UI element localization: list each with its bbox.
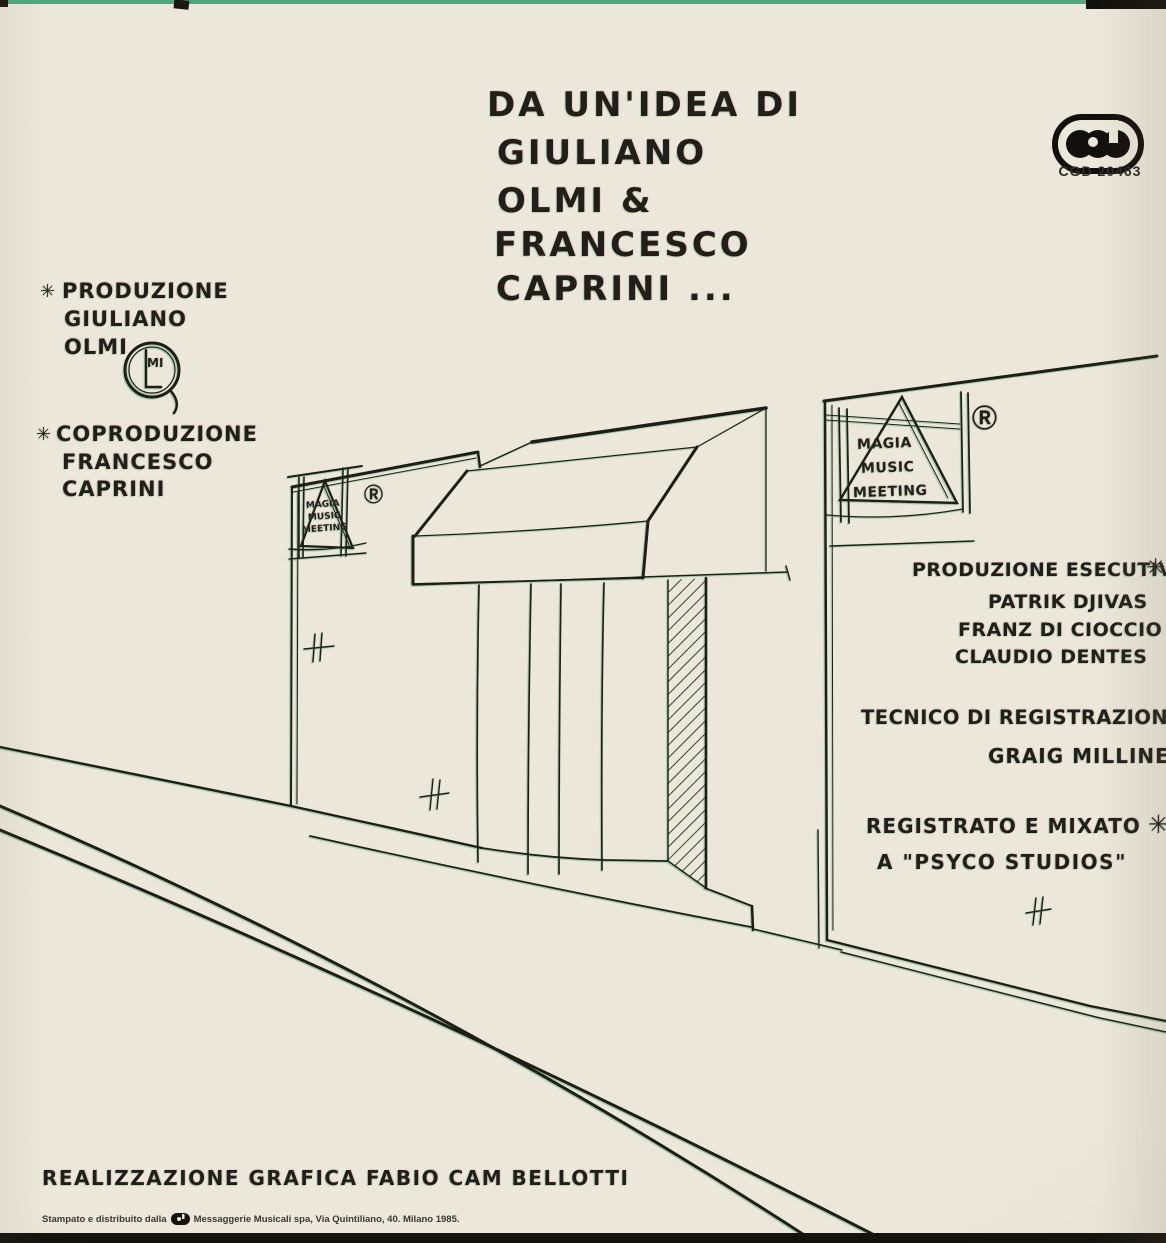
olmi-monogram-letters: MI xyxy=(147,357,163,369)
ground-line xyxy=(0,747,291,806)
sign-right-shelf-2 xyxy=(830,541,974,546)
awning-slope-right xyxy=(648,447,697,521)
sign-brand-line: MAGIA xyxy=(857,436,912,452)
exec-production-name: CLAUDIO DENTES xyxy=(955,648,1147,667)
sign-brand-line: MEETING xyxy=(853,484,928,501)
sign-right-pole-r xyxy=(961,392,970,513)
idea-credit-line: CAPRINI ... xyxy=(496,272,736,306)
left-wall-left-edge-2 xyxy=(297,492,298,804)
sign-left-pole-r xyxy=(341,468,348,556)
studio-line: A "PSYCO STUDIOS" xyxy=(877,852,1127,872)
pillar-hatch-fill xyxy=(668,578,706,888)
right-wall-top-edge xyxy=(824,356,1157,401)
column xyxy=(528,584,531,874)
exec-production-label: PRODUZIONE ESECUTIVA xyxy=(912,561,1166,580)
awning-front-top-edge xyxy=(467,447,697,471)
cgd-logo-notch xyxy=(1109,120,1118,143)
production-line: GIULIANO xyxy=(64,309,187,330)
asterisk-marker: ✳ xyxy=(1148,812,1166,837)
scan-tick xyxy=(174,0,190,10)
left-wall-top-edge xyxy=(292,452,478,487)
right-wall-bottom-edge xyxy=(827,940,1166,1021)
sign-right-shelf xyxy=(827,509,963,517)
production-line: OLMI xyxy=(64,337,128,358)
left-wall-step xyxy=(478,452,480,467)
registered-mark: Ⓡ xyxy=(972,406,997,431)
left-wall-left-edge xyxy=(291,487,292,806)
coproduction-line: FRANCESCO xyxy=(62,452,214,473)
awning-sketch xyxy=(413,408,790,585)
hash-mark xyxy=(304,633,334,662)
left-wall-top-edge-2 xyxy=(293,458,476,492)
mix-label: REGISTRATO E MIXATO xyxy=(866,816,1141,836)
right-wall-left-edge xyxy=(825,401,827,940)
cgd-logo-small-gap xyxy=(177,1217,181,1221)
column xyxy=(602,583,604,870)
awning-back-edge xyxy=(480,442,532,466)
coproduction-line: COPRODUZIONE xyxy=(56,424,258,445)
right-wall-bottom-edge-2 xyxy=(841,952,1166,1032)
asterisk-marker: ✳ xyxy=(1146,557,1166,580)
column xyxy=(559,584,561,874)
right-wall-foot-line xyxy=(818,830,819,948)
cgd-logo-gap xyxy=(1088,137,1098,147)
cgd-logo-small xyxy=(171,1213,190,1225)
left-wall-bottom-edge xyxy=(291,806,482,848)
right-wall-left-edge-2 xyxy=(832,405,833,930)
olmi-monogram xyxy=(125,343,179,413)
hash-mark xyxy=(420,779,449,810)
right-wall-sketch xyxy=(818,356,1166,1032)
monogram-tail xyxy=(170,390,177,413)
coproduction-line: CAPRINI xyxy=(62,479,165,500)
scan-tick xyxy=(0,0,8,7)
engineer-name: GRAIG MILLINER xyxy=(988,746,1166,766)
idea-credit-line: OLMI & xyxy=(497,184,654,218)
production-line: PRODUZIONE xyxy=(62,281,229,302)
catalog-number: CGD 20463 xyxy=(1040,163,1160,179)
base-step xyxy=(752,906,753,930)
exec-production-name: PATRIK DJIVAS xyxy=(988,593,1148,612)
idea-credit-line: DA UN'IDEA DI xyxy=(487,88,802,122)
sign-brand-line: MUSIC xyxy=(861,460,915,476)
print-distribution-line: Stampato e distribuito dalla Messaggerie… xyxy=(42,1213,460,1225)
idea-credit-line: FRANCESCO xyxy=(494,228,752,262)
columns-sketch xyxy=(477,583,842,950)
graphic-design-credit: REALIZZAZIONE GRAFICA FABIO CAM BELLOTTI xyxy=(42,1168,629,1188)
print-credit-after: Messaggerie Musicali spa, Via Quintilian… xyxy=(194,1214,460,1225)
fascia-right xyxy=(643,521,648,578)
album-back-cover: DA UN'IDEA DI GIULIANO OLMI & FRANCESCO … xyxy=(0,0,1166,1243)
asterisk-marker: ✳ xyxy=(40,283,56,301)
monogram-circle xyxy=(125,343,179,397)
fascia-top xyxy=(415,521,648,536)
scan-bottom-bar xyxy=(0,1233,1166,1243)
awning-slope-left xyxy=(415,471,467,536)
column xyxy=(477,585,479,862)
cgd-logo-small-notch xyxy=(182,1214,185,1219)
print-credit-before: Stampato e distribuito dalla xyxy=(42,1214,167,1225)
registered-mark: Ⓡ xyxy=(364,486,383,505)
hash-mark xyxy=(1026,897,1051,925)
sign-right-crossbars xyxy=(826,415,960,429)
colonnade-base xyxy=(482,848,668,861)
scan-corner-bar xyxy=(1086,0,1166,9)
hatched-pillar xyxy=(668,578,706,888)
exec-production-name: FRANZ DI CIOCCIO xyxy=(958,621,1162,640)
asterisk-marker: ✳ xyxy=(36,426,52,444)
colonnade-base-right xyxy=(705,888,752,906)
sign-right-pole-l xyxy=(839,408,849,523)
engineer-label: TECNICO DI REGISTRAZIONE: xyxy=(861,708,1166,728)
idea-credit-line: GIULIANO xyxy=(497,136,707,170)
awning-ridge xyxy=(532,408,766,442)
